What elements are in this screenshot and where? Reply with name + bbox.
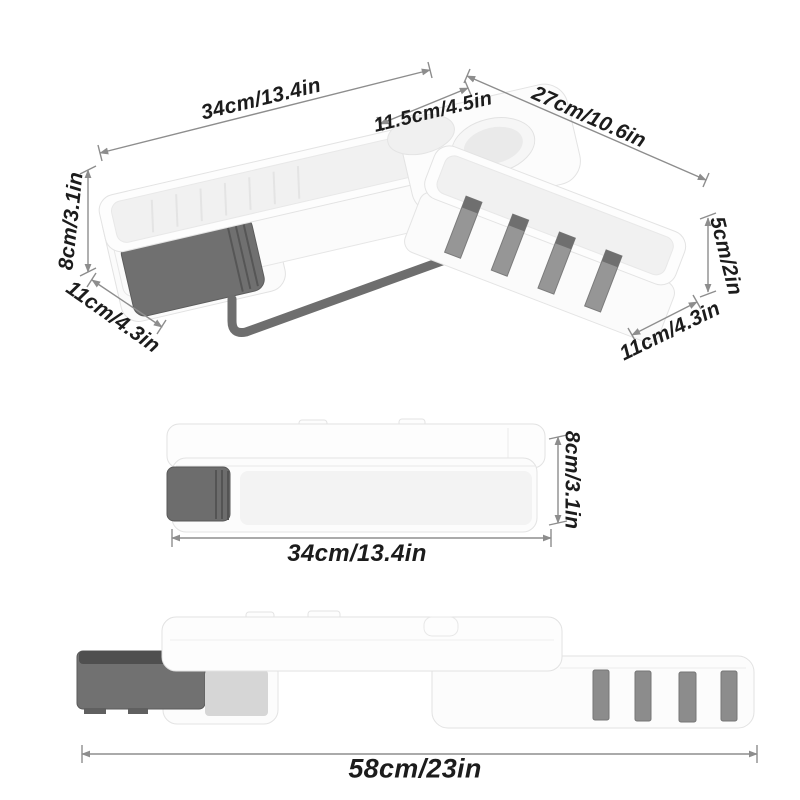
slot-2 — [635, 671, 651, 721]
isometric-view — [80, 62, 716, 346]
drawer-foot-2 — [128, 708, 148, 714]
extended-left-shelf — [162, 617, 562, 671]
cup-recess-outline — [424, 617, 458, 636]
front-drawer — [167, 467, 230, 521]
bracket-window — [205, 670, 268, 716]
slot-4 — [721, 671, 737, 721]
dim-label-front-length: 34cm/13.4in — [287, 542, 426, 566]
slot-3 — [679, 672, 696, 722]
drawer-foot-1 — [84, 708, 106, 714]
dim-label-front-height: 8cm/3.1in — [562, 431, 583, 529]
extended-view — [77, 611, 757, 763]
front-inner-panel — [240, 471, 532, 525]
product-dimension-diagram: 34cm/13.4in 11.5cm/4.5in 27cm/10.6in 8cm… — [0, 0, 800, 800]
dim-label-total-length: 58cm/23in — [348, 756, 481, 783]
front-view — [167, 419, 567, 547]
slot-1 — [593, 670, 609, 720]
